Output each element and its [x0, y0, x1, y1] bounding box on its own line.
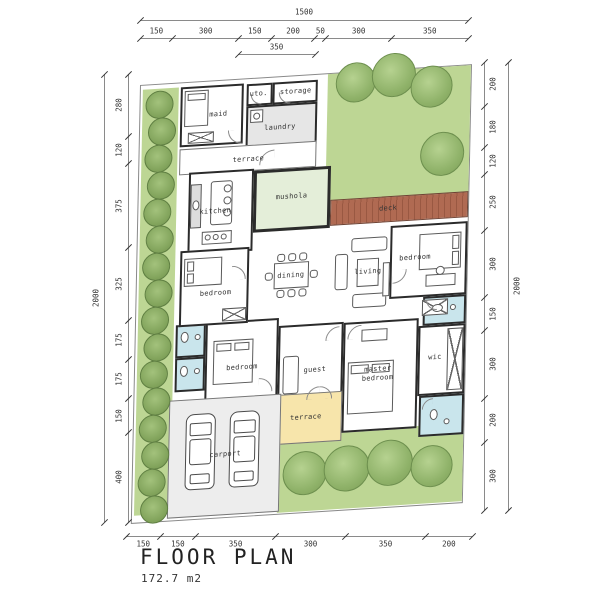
dim-label: 300 [489, 257, 498, 271]
dim-label: 2000 [513, 277, 522, 295]
dim-label: 120 [489, 154, 498, 168]
desk-icon [361, 328, 387, 342]
label-guest: guest [303, 365, 326, 374]
dim-label: 2000 [92, 289, 101, 307]
dim-label: 300 [489, 470, 498, 484]
tv-console [382, 262, 390, 296]
pillow-icon [452, 235, 459, 249]
dim-label: 350 [270, 43, 284, 52]
dim-line [508, 62, 509, 510]
room-bath-left-1 [175, 324, 206, 359]
sofa-icon [352, 292, 386, 308]
pillow-icon [234, 342, 249, 351]
pillow-icon [187, 261, 194, 271]
wardrobe-icon [188, 131, 214, 144]
desk-icon [425, 273, 455, 287]
dim-label: 200 [286, 27, 300, 36]
dim-line [238, 54, 315, 55]
dim-label: 250 [489, 195, 498, 209]
car-trunk [190, 473, 210, 484]
pillow-icon [216, 343, 231, 352]
dim-label: 150 [150, 27, 164, 36]
dim-label: 1500 [295, 8, 313, 17]
dim-label: 300 [199, 27, 213, 36]
label-utility: uto. [250, 89, 268, 98]
dim-line [128, 74, 129, 522]
dim-label: 150 [489, 307, 498, 321]
label-maid: maid [209, 109, 227, 118]
dim-label: 50 [316, 27, 325, 36]
dim-label: 325 [115, 277, 124, 291]
chair-icon [288, 253, 296, 262]
wardrobe-icon [222, 307, 246, 322]
pillow-icon [187, 273, 194, 283]
sofa-icon [334, 254, 348, 291]
dim-label: 200 [489, 78, 498, 92]
chair-icon [287, 289, 295, 298]
label-dining: dining [277, 270, 304, 280]
dim-label: 150 [248, 27, 262, 36]
dim-label: 175 [115, 372, 124, 386]
dim-label: 350 [423, 27, 437, 36]
room-bath-2 [418, 393, 464, 437]
dim-label: 200 [489, 414, 498, 428]
dim-label: 300 [489, 358, 498, 372]
pillow-icon [188, 93, 206, 101]
chair-icon [277, 254, 285, 263]
plot: maid uto. storage laundry terrace kitche… [131, 64, 472, 524]
car-trunk [234, 470, 254, 481]
dim-line [140, 38, 468, 39]
car-hood [234, 419, 256, 433]
label-wic: wic [428, 353, 442, 362]
dim-label: 280 [115, 99, 124, 113]
wardrobe-icon [446, 327, 463, 390]
dim-label: 180 [489, 120, 498, 134]
sofa-bed-icon [282, 356, 299, 395]
dim-label: 350 [379, 540, 393, 549]
area-label: 172.7 m2 [141, 572, 202, 585]
dim-label: 400 [115, 470, 124, 484]
page-title: FLOOR PLAN [140, 545, 296, 569]
chair-icon [265, 272, 273, 281]
floor-plan-sheet: maid uto. storage laundry terrace kitche… [0, 0, 600, 600]
hedge-shrub-icon [140, 495, 169, 525]
chair-icon [299, 252, 307, 261]
dim-label: 300 [352, 27, 366, 36]
dim-line [140, 20, 468, 21]
dim-label: 200 [442, 540, 456, 549]
label-living: living [354, 267, 381, 277]
sofa-icon [351, 236, 387, 252]
dim-label: 175 [115, 333, 124, 347]
dim-line [126, 536, 472, 537]
chair-icon [276, 290, 284, 299]
chair-icon [310, 270, 318, 279]
room-bath-left-2 [175, 357, 206, 393]
dim-label: 375 [115, 199, 124, 213]
car-roof [189, 438, 212, 465]
dim-label: 150 [115, 409, 124, 423]
label-deck: deck [379, 204, 397, 213]
pillow-icon [452, 251, 459, 265]
dim-label: 300 [304, 540, 318, 549]
chair-icon [298, 288, 306, 297]
label-master-bedroom: master bedroom [354, 363, 400, 383]
car-hood [190, 422, 212, 436]
dim-label: 120 [115, 143, 124, 157]
dim-line [104, 74, 105, 522]
